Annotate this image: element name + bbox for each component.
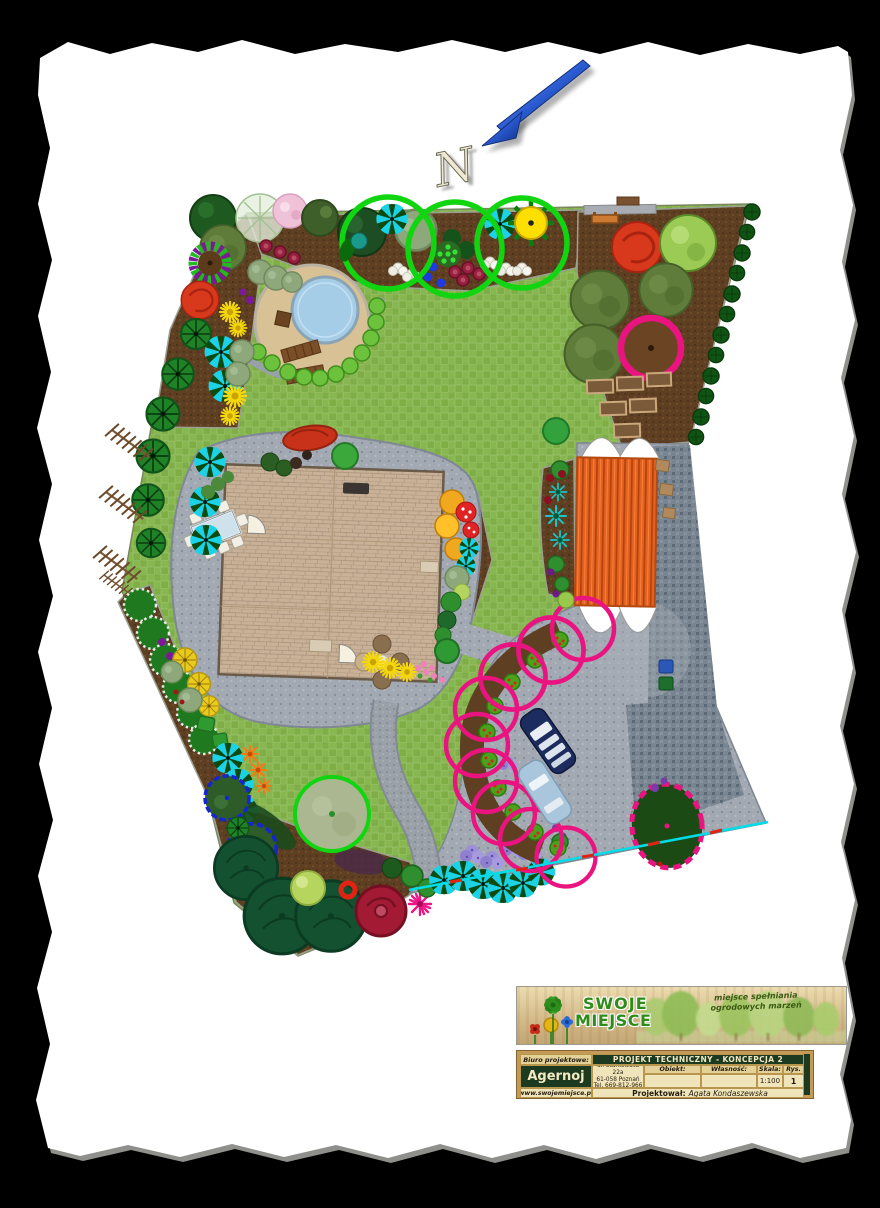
green-bin bbox=[659, 677, 673, 690]
lawn-circle-ornament bbox=[295, 777, 369, 851]
drawing-number-value: 1 bbox=[783, 1074, 804, 1088]
scale-value: 1:100 bbox=[757, 1074, 783, 1088]
garage-roof bbox=[575, 457, 658, 606]
house-step bbox=[309, 639, 331, 652]
page: { "compass": { "label": "N" }, "logo": {… bbox=[0, 0, 880, 1203]
project-title: PROJEKT TECHNICZNY - KONCEPCJA 2 bbox=[592, 1054, 804, 1065]
company-name: Agernoj bbox=[520, 1065, 592, 1088]
house bbox=[218, 464, 443, 681]
chimney bbox=[343, 482, 369, 494]
design-office-label: Biuro projektowe: bbox=[520, 1054, 592, 1065]
scale-label: Skala: bbox=[757, 1065, 783, 1074]
designer-label: Projektował: bbox=[632, 1089, 686, 1098]
swimming-pool bbox=[292, 277, 358, 343]
brand-line2: MIEJSCE bbox=[575, 1013, 651, 1029]
drawing-number-label: Rys. bbox=[783, 1065, 804, 1074]
garage bbox=[574, 437, 659, 633]
designer-name: Agata Kondaszewska bbox=[689, 1089, 768, 1098]
title-block: Biuro projektowe: PROJEKT TECHNICZNY - K… bbox=[517, 1051, 813, 1098]
company-address: ul. Starkowska 22a 61-058 Poznań Tel. 66… bbox=[592, 1065, 644, 1088]
logo-banner: SWOJE MIEJSCE miejsce spełniania ogrodow… bbox=[516, 986, 847, 1045]
designer-row: Projektował: Agata Kondaszewska bbox=[592, 1088, 804, 1098]
ownership-label: Własność: bbox=[701, 1065, 757, 1074]
pink-flower-tree bbox=[621, 318, 681, 378]
side-table bbox=[275, 311, 292, 328]
object-label: Obiekt: bbox=[644, 1065, 701, 1074]
house-step bbox=[420, 561, 438, 573]
brand-line1: SWOJE bbox=[583, 996, 651, 1012]
brand-wordmark: SWOJE MIEJSCE bbox=[583, 996, 651, 1029]
ownership-value bbox=[701, 1074, 757, 1088]
north-arrow: N N bbox=[428, 60, 595, 201]
website: www.swojemiejsce.pl bbox=[520, 1088, 592, 1098]
object-value bbox=[644, 1074, 701, 1088]
blue-bin bbox=[659, 660, 673, 673]
